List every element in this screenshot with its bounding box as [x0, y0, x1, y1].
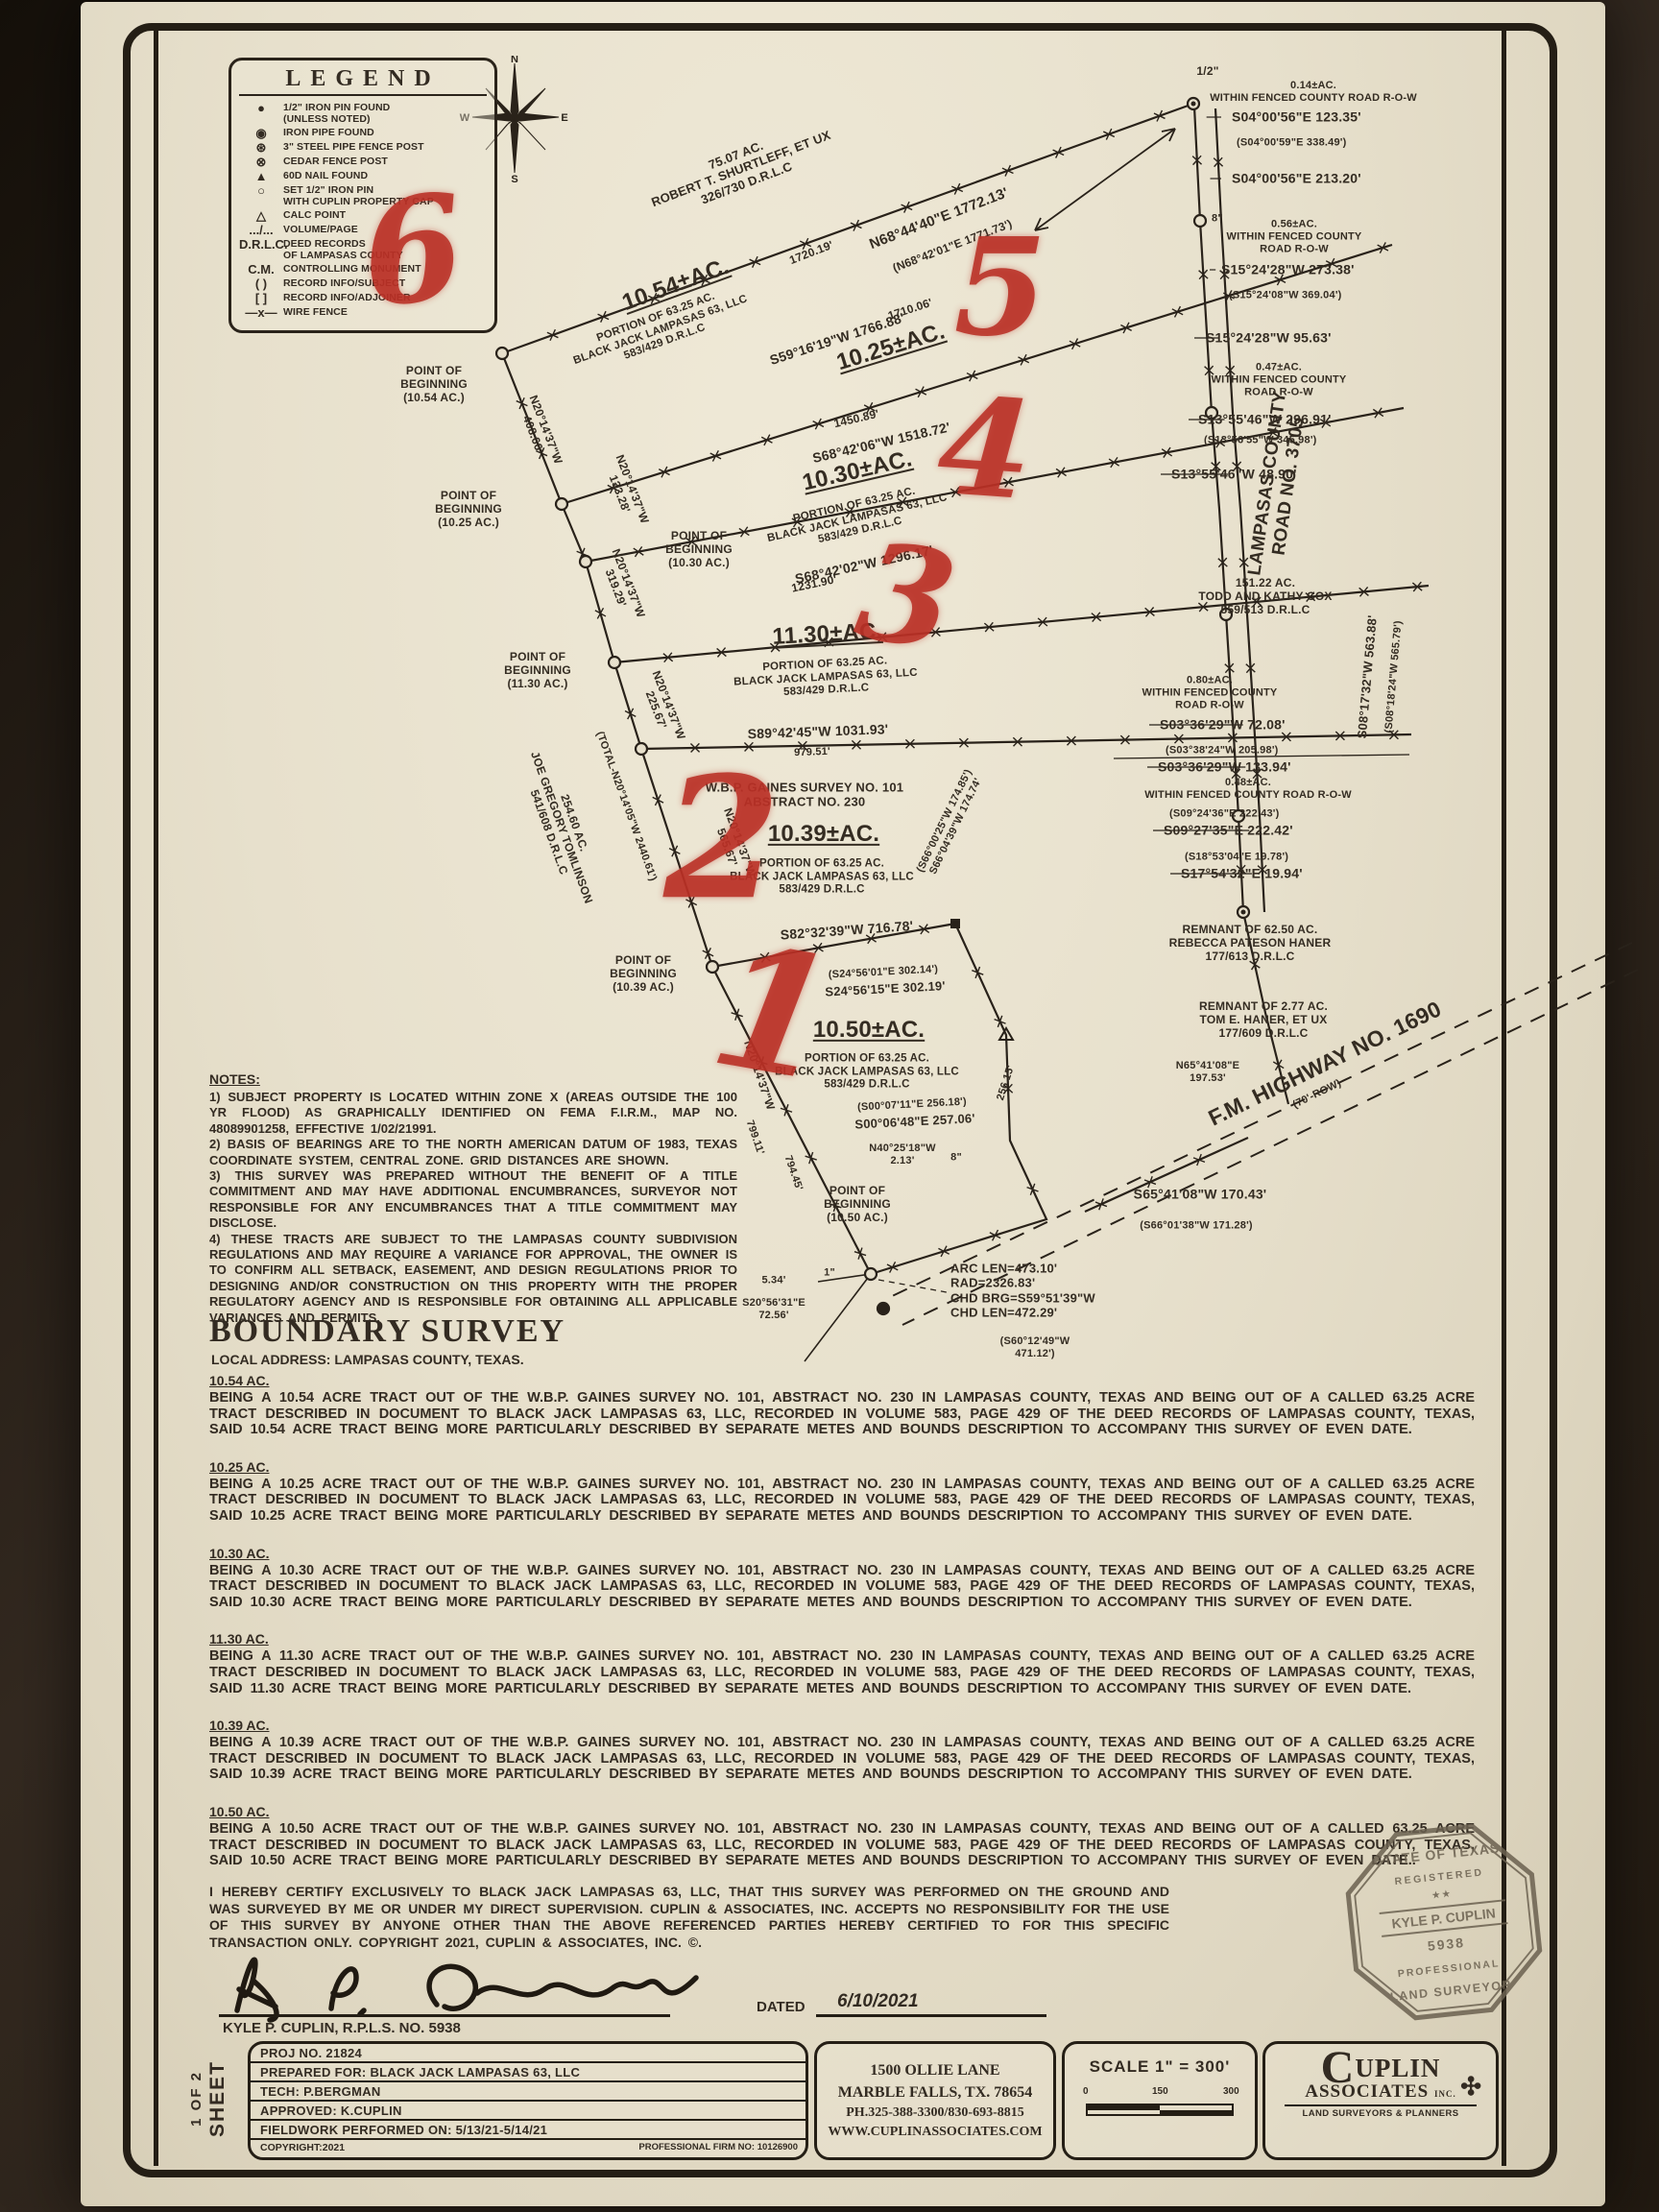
plat-label: (S18°53'04"E 19.78') — [1185, 852, 1288, 864]
signature-line — [219, 2014, 670, 2017]
plat-label: (S66°01'38"W 171.28') — [1140, 1220, 1253, 1233]
tract-heading: 10.50 AC. — [209, 1804, 1475, 1819]
plat-label: S15°24'28"W 95.63' — [1206, 330, 1332, 347]
firm-phone: PH.325-388-3300/830-693-8815 — [846, 2104, 1023, 2123]
sheet-count: 1 OF 2 — [188, 2071, 204, 2127]
legend-symbol-icon: ○ — [239, 184, 283, 197]
dimension-arrow-line — [1035, 129, 1175, 230]
legend-label: 3" STEEL PIPE FENCE POST — [283, 141, 424, 153]
legend-symbol-icon: ⊗ — [239, 156, 283, 168]
firm-website: WWW.CUPLINASSOCIATES.COM — [828, 2123, 1042, 2142]
plat-label: S04°00'56"E 213.20' — [1232, 171, 1361, 187]
legend-symbol-icon: ( ) — [239, 277, 283, 290]
dated-label: DATED — [757, 1999, 805, 2015]
plat-label: 979.51' — [794, 746, 830, 759]
plat-label: 1" — [824, 1267, 835, 1280]
plat-label: S03°36'29"W 72.08' — [1160, 717, 1286, 733]
legend-item: ⊛3" STEEL PIPE FENCE POST — [239, 141, 487, 154]
legend-item: ●1/2" IRON PIN FOUND (UNLESS NOTED) — [239, 102, 487, 125]
logo-compass-icon: ✣ — [1460, 2073, 1482, 2102]
plat-label: (S04°00'59"E 338.49') — [1237, 137, 1346, 150]
project-info-row: PREPARED FOR: BLACK JACK LAMPASAS 63, LL… — [251, 2063, 805, 2082]
tract-description: BEING A 10.25 ACRE TRACT OUT OF THE W.B.… — [209, 1477, 1475, 1525]
seal-registered: REGISTERED — [1394, 1866, 1484, 1887]
plat-label: S17°54'32"E 19.94' — [1181, 866, 1303, 882]
tract-heading: 10.39 AC. — [209, 1718, 1475, 1733]
legend-label: IRON PIPE FOUND — [283, 127, 374, 138]
note-item: 1) SUBJECT PROPERTY IS LOCATED WITHIN ZO… — [209, 1090, 737, 1137]
plat-label: REMNANT OF 62.50 AC. REBECCA PATESON HAN… — [1169, 923, 1332, 963]
monument-set-pin — [609, 657, 620, 668]
legend-label: 1/2" IRON PIN FOUND (UNLESS NOTED) — [283, 102, 390, 125]
project-info-table: PROJ NO. 21824PREPARED FOR: BLACK JACK L… — [248, 2041, 808, 2160]
legend-symbol-icon: .../... — [239, 224, 283, 236]
plat-label: (S60°12'49"W 471.12') — [1000, 1335, 1070, 1360]
tract-description: BEING A 10.50 ACRE TRACT OUT OF THE W.B.… — [209, 1821, 1475, 1869]
plat-label: 5.34' — [761, 1275, 785, 1287]
surveyor-signature — [216, 1934, 754, 2026]
tract-descriptions: 10.54 AC.BEING A 10.54 ACRE TRACT OUT OF… — [209, 1373, 1475, 1890]
page-title: BOUNDARY SURVEY — [209, 1313, 565, 1350]
sheet-word: SHEET — [206, 2060, 229, 2137]
highway-row-line — [888, 943, 1632, 1298]
tract-number-red: 6 — [356, 181, 469, 321]
legend-symbol-icon: —x— — [239, 306, 283, 319]
date-value: 6/10/2021 — [837, 1991, 919, 2012]
plat-label: S13°55'46"W 48.90' — [1171, 467, 1297, 483]
plat-label: POINT OF BEGINNING (10.39 AC.) — [610, 953, 677, 994]
plat-label: 0.80±AC. WITHIN FENCED COUNTY ROAD R-O-W — [1142, 675, 1278, 712]
compass-s: S — [511, 174, 517, 182]
plat-label: 1/2" — [1196, 64, 1218, 78]
project-info-row: APPROVED: K.CUPLIN — [251, 2102, 805, 2121]
logo-tagline: LAND SURVEYORS & PLANNERS — [1265, 2108, 1496, 2119]
plat-label: (S13°56'55"W 345.98') — [1204, 435, 1317, 447]
note-item: 4) THESE TRACTS ARE SUBJECT TO THE LAMPA… — [209, 1232, 737, 1326]
date-line — [816, 2014, 1046, 2017]
firm-address-box: 1500 OLLIE LANE MARBLE FALLS, TX. 78654 … — [814, 2041, 1056, 2160]
plat-label: 151.22 AC. TODD AND KATHY COX 559/513 D.… — [1198, 576, 1332, 616]
plat-label: S15°24'28"W 273.38' — [1221, 262, 1355, 278]
leader-line — [878, 1280, 947, 1292]
tract-heading: 11.30 AC. — [209, 1631, 1475, 1647]
legend-symbol-icon: ● — [239, 102, 283, 114]
project-info-footer: COPYRIGHT:2021 PROFESSIONAL FIRM NO: 101… — [251, 2140, 805, 2153]
tract-number-red: 2 — [663, 763, 781, 915]
legend-symbol-icon: △ — [239, 209, 283, 222]
logo-divider — [1285, 2104, 1477, 2106]
copyright-note: COPYRIGHT:2021 — [260, 2142, 345, 2153]
firm-number: PROFESSIONAL FIRM NO: 10126900 — [638, 2142, 798, 2153]
project-info-rows: PROJ NO. 21824PREPARED FOR: BLACK JACK L… — [251, 2044, 805, 2140]
tract-heading: 10.30 AC. — [209, 1546, 1475, 1561]
plat-label: POINT OF BEGINNING (10.50 AC.) — [824, 1184, 891, 1224]
photo-background: N E S W LEGEND ●1/2" IRON PIN FOUND (UNL… — [0, 0, 1659, 2212]
tract-description: BEING A 11.30 ACRE TRACT OUT OF THE W.B.… — [209, 1648, 1475, 1696]
project-info-row: PROJ NO. 21824 — [251, 2044, 805, 2063]
plat-label: 0.56±AC. WITHIN FENCED COUNTY ROAD R-O-W — [1227, 219, 1362, 256]
notes-items: 1) SUBJECT PROPERTY IS LOCATED WITHIN ZO… — [209, 1090, 737, 1326]
survey-sheet-content: N E S W LEGEND ●1/2" IRON PIN FOUND (UNL… — [0, 0, 1659, 2212]
scale-tick: 300 — [1223, 2086, 1239, 2097]
tract-heading: 10.25 AC. — [209, 1459, 1475, 1475]
plat-label: POINT OF BEGINNING (10.30 AC.) — [665, 529, 733, 569]
tract-description: BEING A 10.39 ACRE TRACT OUT OF THE W.B.… — [209, 1735, 1475, 1783]
surveyor-name: KYLE P. CUPLIN, R.P.L.S. NO. 5938 — [223, 2020, 461, 2036]
plat-label: POINT OF BEGINNING (10.25 AC.) — [435, 489, 502, 529]
legend-symbol-icon: D.R.L.C. — [239, 238, 283, 251]
monument-set-pin — [865, 1268, 877, 1280]
scale-box: SCALE 1" = 300' 0 150 300 — [1062, 2041, 1258, 2160]
note-item: 2) BASIS OF BEARINGS ARE TO THE NORTH AM… — [209, 1137, 737, 1168]
legend-symbol-icon: ▲ — [239, 170, 283, 182]
monument-set-pin — [1194, 215, 1206, 227]
compass-e: E — [561, 112, 567, 124]
plat-label: POINT OF BEGINNING (10.54 AC.) — [400, 364, 468, 404]
plat-label: S20°56'31"E 72.56' — [742, 1297, 805, 1322]
logo-name: CUPLIN✣ — [1265, 2054, 1496, 2083]
seal-number: 5938 — [1427, 1935, 1466, 1954]
scale-tick: 0 — [1083, 2086, 1089, 2097]
notes-section: NOTES: 1) SUBJECT PROPERTY IS LOCATED WI… — [209, 1071, 737, 1326]
plat-label: (S03°38'24"W 205.98') — [1166, 745, 1279, 757]
legend-label: CEDAR FENCE POST — [283, 156, 388, 167]
notes-heading: NOTES: — [209, 1071, 737, 1087]
plat-label: S04°00'56"E 123.35' — [1232, 109, 1361, 126]
legend-label: WIRE FENCE — [283, 306, 348, 318]
legend-item: ◉IRON PIPE FOUND — [239, 127, 487, 139]
plat-label: S65°41'08"W 170.43' — [1134, 1187, 1267, 1203]
scale-ticks: 0 150 300 — [1083, 2086, 1237, 2100]
plat-label: REMNANT OF 2.77 AC. TOM E. HANER, ET UX … — [1199, 999, 1328, 1040]
tract-description: BEING A 10.54 ACRE TRACT OUT OF THE W.B.… — [209, 1390, 1475, 1438]
scale-tick: 150 — [1152, 2086, 1168, 2097]
seal-stars: ★ ★ — [1431, 1888, 1452, 1900]
tract-number-red: 5 — [953, 228, 1046, 349]
firm-address-line: 1500 OLLIE LANE — [870, 2059, 999, 2081]
monument-set-pin — [496, 348, 508, 359]
monument-pipe-found — [1191, 102, 1196, 107]
monument-pipe-found — [1241, 910, 1246, 915]
firm-logo-box: CUPLIN✣ ASSOCIATES INC. LAND SURVEYORS &… — [1262, 2041, 1499, 2160]
legend-symbol-icon: ◉ — [239, 127, 283, 139]
note-item: 3) THIS SURVEY WAS PREPARED WITHOUT THE … — [209, 1168, 737, 1232]
plat-label: ARC LEN=473.10' RAD=2326.83' CHD BRG=S59… — [950, 1261, 1095, 1319]
plat-label: N40°25'18"W 2.13' — [869, 1142, 935, 1167]
sheet-number-strip: 1 OF 2 SHEET — [188, 2043, 229, 2154]
local-address: LOCAL ADDRESS: LAMPASAS COUNTY, TEXAS. — [211, 1352, 524, 1367]
plat-label: 0.47±AC. WITHIN FENCED COUNTY ROAD R-O-W — [1212, 362, 1347, 399]
monument-set-pin — [707, 961, 718, 973]
plat-label: (S15°24'08"W 369.04') — [1229, 290, 1342, 302]
plat-label: 10.39±AC. — [768, 821, 879, 848]
legend-label: CALC POINT — [283, 209, 346, 221]
monument-found-pin — [950, 919, 960, 928]
legend-symbol-icon: ⊛ — [239, 141, 283, 154]
tract-number-red: 4 — [934, 386, 1036, 513]
monument-set-pin — [556, 498, 567, 510]
tie-line — [805, 1274, 871, 1361]
tract-heading: 10.54 AC. — [209, 1373, 1475, 1388]
surveyor-seal-stamp: STATE OF TEXAS REGISTERED ★ ★ KYLE P. CU… — [1330, 1808, 1557, 2035]
plat-label: 0.14±AC. WITHIN FENCED COUNTY ROAD R-O-W — [1210, 80, 1417, 105]
seal-state: STATE OF TEXAS — [1373, 1840, 1501, 1869]
seal-professional: PROFESSIONAL — [1397, 1958, 1501, 1980]
scale-label: SCALE 1" = 300' — [1065, 2057, 1255, 2077]
project-info-row: TECH: P.BERGMAN — [251, 2082, 805, 2102]
project-info-row: FIELDWORK PERFORMED ON: 5/13/21-5/14/21 — [251, 2121, 805, 2140]
plat-label: POINT OF BEGINNING (11.30 AC.) — [504, 650, 571, 690]
plat-label: N65°41'08"E 197.53' — [1176, 1060, 1239, 1085]
tract-description: BEING A 10.30 ACRE TRACT OUT OF THE W.B.… — [209, 1563, 1475, 1611]
monument-found-pin — [878, 1303, 889, 1314]
legend-symbol-icon: C.M. — [239, 263, 283, 276]
firm-address-line: MARBLE FALLS, TX. 78654 — [838, 2081, 1033, 2104]
scale-bar — [1086, 2104, 1234, 2116]
monument-set-pin — [636, 743, 647, 755]
plat-label: (S09°24'36"E 222.43') — [1169, 808, 1279, 821]
monument-set-pin — [580, 556, 591, 567]
legend-title: LEGEND — [239, 66, 487, 96]
seal-name: KYLE P. CUPLIN — [1391, 1905, 1497, 1931]
plat-label: S13°55'46"W 296.91' — [1198, 412, 1332, 428]
legend-label: VOLUME/PAGE — [283, 224, 358, 235]
plat-label: S03°36'29"W 133.94' — [1158, 759, 1291, 776]
plat-label: 8" — [950, 1152, 962, 1165]
plat-label: S09°27'35"E 222.42' — [1164, 823, 1293, 839]
compass-n: N — [511, 56, 518, 65]
seal-land-surveyor: LAND SURVEYOR — [1389, 1978, 1512, 2004]
boundary-line — [502, 104, 1193, 353]
plat-label: 0.48±AC. WITHIN FENCED COUNTY ROAD R-O-W — [1144, 777, 1352, 802]
legend-symbol-icon: [ ] — [239, 292, 283, 304]
plat-label: 8" — [1212, 213, 1223, 226]
